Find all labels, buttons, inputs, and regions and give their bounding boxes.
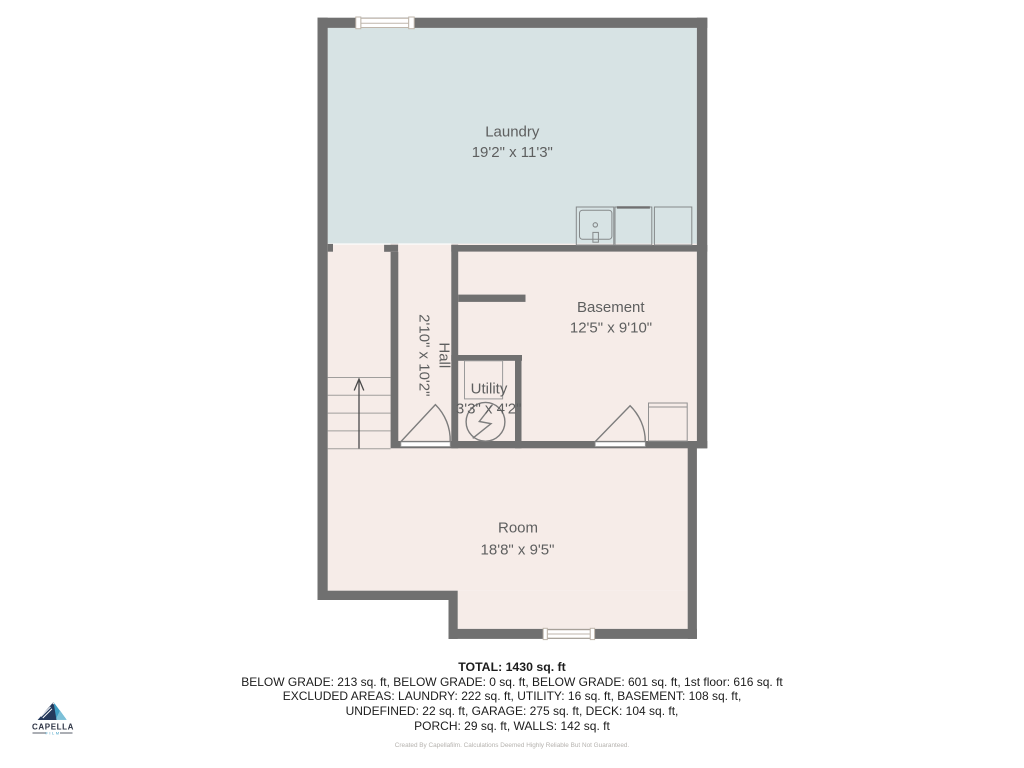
- svg-text:FILM: FILM: [45, 731, 60, 736]
- svg-text:3'3" x 4'2": 3'3" x 4'2": [456, 401, 522, 418]
- svg-text:Basement: Basement: [577, 299, 645, 316]
- svg-text:Utility: Utility: [471, 380, 508, 397]
- svg-text:Hall: Hall: [436, 342, 453, 368]
- svg-text:19'2" x 11'3": 19'2" x 11'3": [472, 144, 553, 161]
- svg-text:12'5" x 9'10": 12'5" x 9'10": [570, 320, 652, 337]
- svg-text:2'10" x 10'2": 2'10" x 10'2": [416, 314, 433, 396]
- svg-text:Laundry: Laundry: [485, 124, 540, 141]
- svg-text:18'8" x 9'5": 18'8" x 9'5": [481, 541, 555, 558]
- svg-text:Room: Room: [498, 520, 538, 537]
